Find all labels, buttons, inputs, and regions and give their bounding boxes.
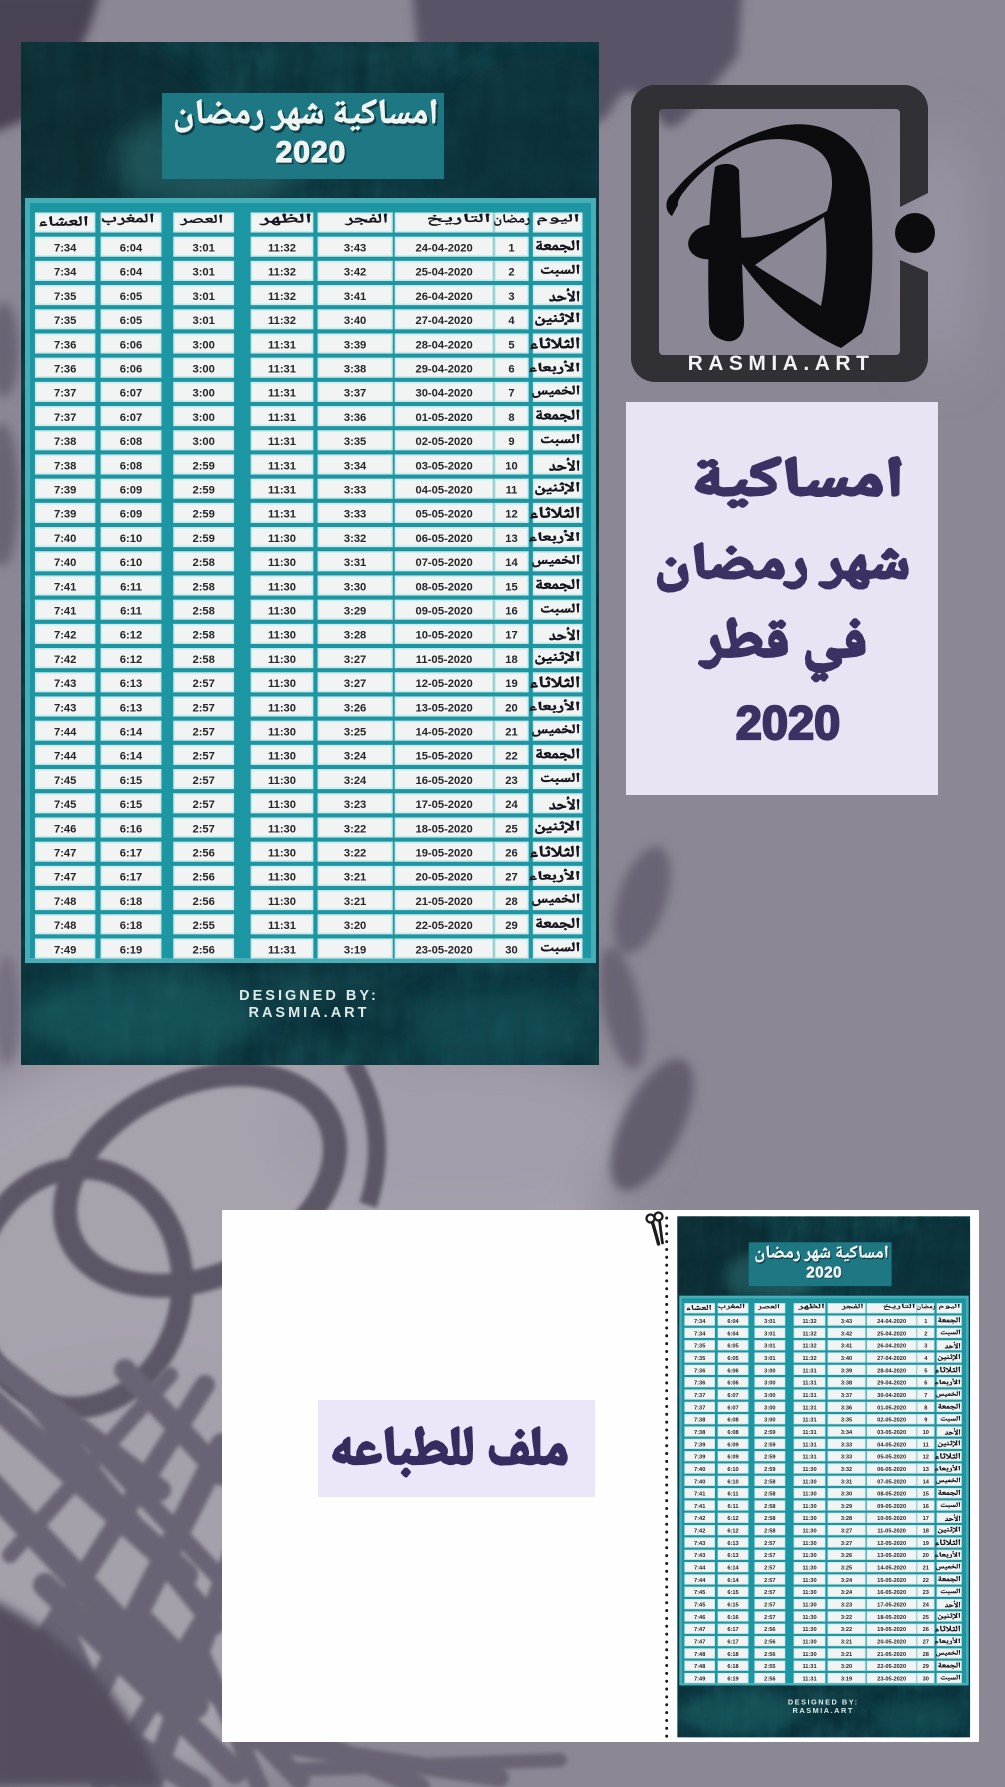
svg-text:2020: 2020 bbox=[736, 696, 841, 749]
svg-text:RASMIA.ART: RASMIA.ART bbox=[688, 352, 875, 375]
